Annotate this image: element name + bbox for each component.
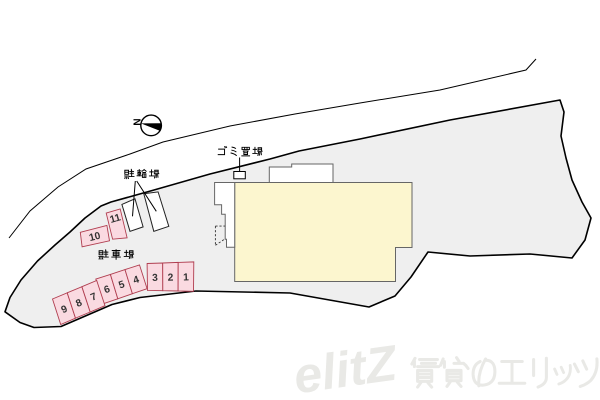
svg-text:elitZ: elitZ	[290, 334, 402, 400]
svg-text:1: 1	[183, 272, 189, 283]
svg-text:2: 2	[167, 272, 173, 283]
svg-text:N: N	[132, 118, 143, 125]
svg-text:3: 3	[152, 273, 158, 284]
